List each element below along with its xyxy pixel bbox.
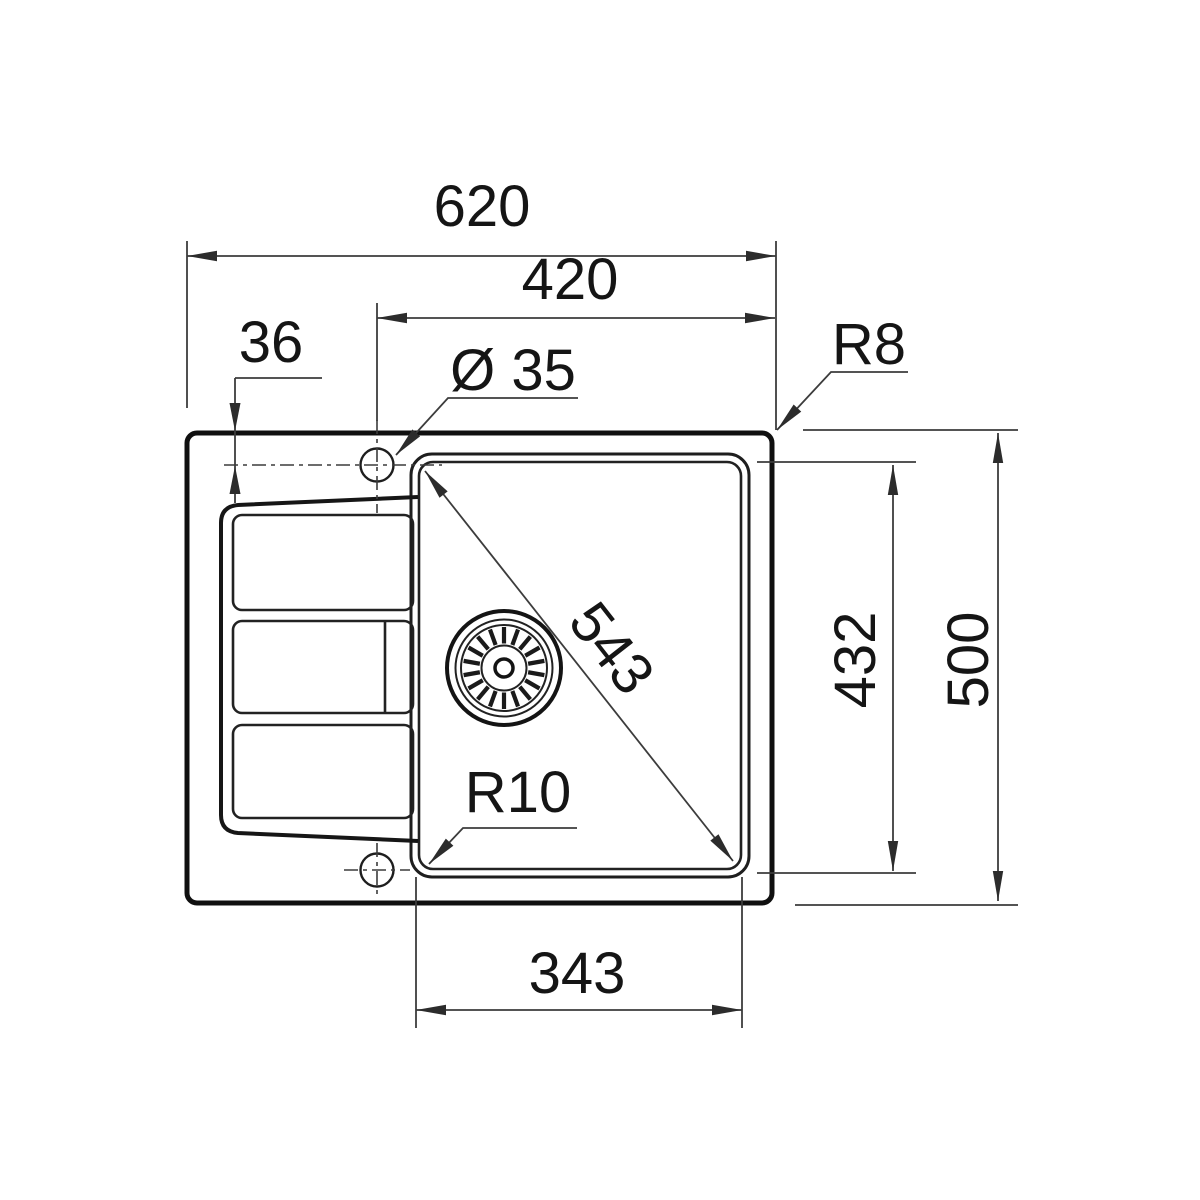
- sink-body: [187, 420, 772, 903]
- sink-dimension-diagram: 620 420 36 Ø 35 R8 543: [0, 0, 1200, 1200]
- dim-343-label: 343: [529, 941, 626, 1006]
- dim-500-label: 500: [936, 612, 1001, 709]
- dim-bowl-depth-432: 432: [757, 462, 916, 873]
- dim-corner-r10: R10: [429, 760, 577, 864]
- dim-543-label: 543: [556, 590, 667, 706]
- dim-d35-label: Ø 35: [450, 338, 576, 403]
- dim-r10-label: R10: [465, 760, 571, 825]
- dim-36-label: 36: [239, 310, 304, 375]
- dim-offset-36: 36: [230, 310, 323, 503]
- dim-r8-leader: [777, 372, 908, 430]
- dim-tap-hole-diameter: Ø 35: [396, 338, 578, 455]
- drainer-ledge: [221, 497, 418, 841]
- dim-36-arrow-down: [230, 403, 241, 431]
- dim-620-label: 620: [434, 174, 531, 239]
- drainer-groove-top: [233, 515, 413, 610]
- drainer-groove-bottom: [233, 725, 413, 818]
- dim-bowl-width-343: 343: [416, 877, 742, 1028]
- dim-432-label: 432: [823, 612, 888, 709]
- drain-hub-ring: [482, 646, 527, 691]
- tap-hole-bottom: [344, 843, 410, 898]
- dim-d35-leader: [396, 398, 578, 455]
- dim-width-420: 420: [377, 247, 775, 421]
- dim-36-arrow-up: [230, 466, 241, 494]
- sink-technical-drawing-page: 620 420 36 Ø 35 R8 543: [0, 0, 1200, 1200]
- dim-corner-r8: R8: [777, 312, 908, 430]
- dim-420-label: 420: [522, 247, 619, 312]
- dim-r8-label: R8: [832, 312, 906, 377]
- drain-strainer: [447, 611, 561, 725]
- dim-r10-leader: [429, 828, 577, 864]
- dimension-annotations: 620 420 36 Ø 35 R8 543: [187, 174, 1018, 1028]
